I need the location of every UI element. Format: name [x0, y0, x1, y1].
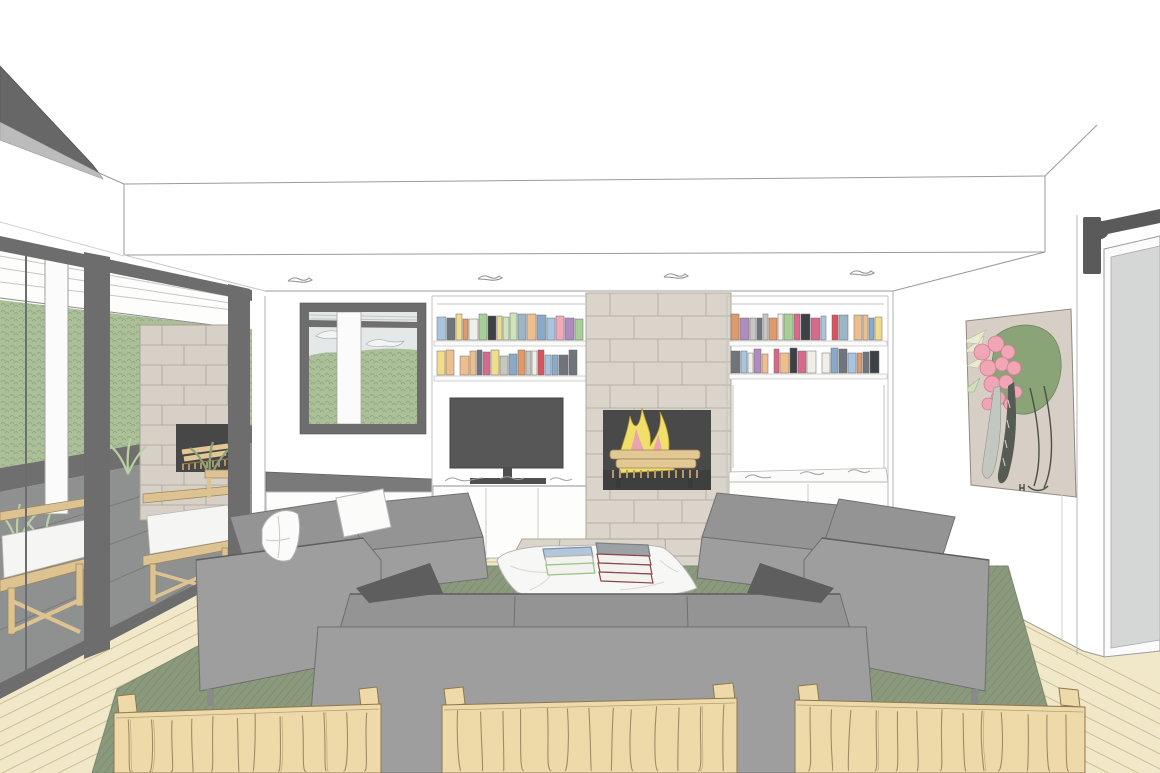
shelf-board [729, 374, 887, 379]
artwork [962, 309, 1076, 497]
sofa-back-cushions [340, 594, 850, 629]
sliding-door-glass [1111, 246, 1160, 648]
shelf-board [434, 341, 586, 346]
coffee-table [497, 543, 697, 598]
rendering-canvas: Living room interior — hand-sketch archi… [0, 0, 1160, 773]
tv-stand-base [470, 478, 546, 484]
glass-wall-mullion [84, 252, 110, 659]
tv-screen [450, 398, 563, 468]
book-stack-right [596, 543, 653, 583]
bookshelf-left-top [437, 313, 583, 340]
shelf-board [434, 376, 586, 381]
patio-column [45, 256, 68, 514]
book-stack-left [543, 547, 595, 575]
window [300, 303, 426, 434]
sliding-door [1104, 236, 1160, 657]
window-column [337, 312, 361, 424]
living-room-rendering: Living room interior — hand-sketch archi… [0, 0, 1160, 773]
fire-logs [610, 450, 700, 468]
shelf-board [729, 341, 887, 346]
bookshelf-right-top [731, 314, 882, 340]
